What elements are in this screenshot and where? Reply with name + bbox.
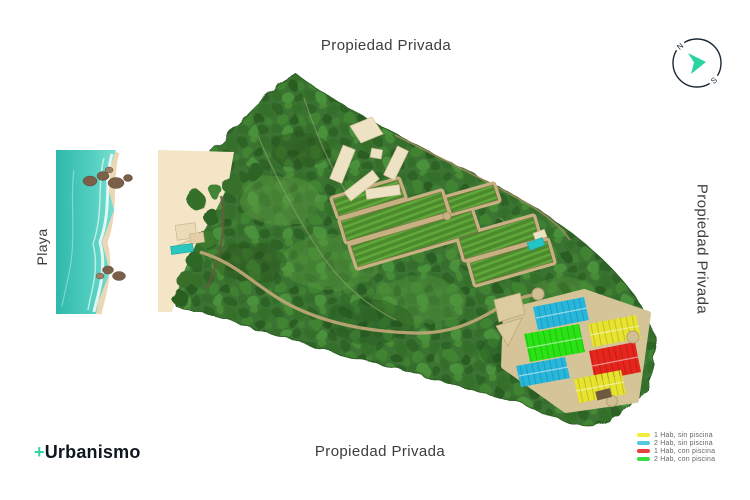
legend-swatch-blue xyxy=(637,441,650,445)
legend-swatch-yellow xyxy=(637,433,650,437)
label-private-property-top: Propiedad Privada xyxy=(321,37,451,54)
masterplan-page: Propiedad Privada Propiedad Privada Prop… xyxy=(0,0,750,500)
legend-item: 2 Hab, sin piscina xyxy=(637,439,715,447)
legend-swatch-green xyxy=(637,457,650,461)
compass-needle xyxy=(688,53,706,74)
legend-label: 2 Hab, sin piscina xyxy=(654,440,713,447)
logo-plus-icon: + xyxy=(34,442,45,462)
legend-label: 2 Hab, con piscina xyxy=(654,456,715,463)
legend-item: 2 Hab, con piscina xyxy=(637,455,715,463)
field-roundabout xyxy=(443,212,451,220)
legend-label: 1 Hab, con piscina xyxy=(654,448,715,455)
label-private-property-right: Propiedad Privada xyxy=(694,184,711,314)
compass-icon: N S xyxy=(664,31,730,97)
legend-swatch-red xyxy=(637,449,650,453)
legend-item: 1 Hab, con piscina xyxy=(637,447,715,455)
urbanismo-logo: +Urbanismo xyxy=(34,442,141,463)
site-plan-map xyxy=(0,0,750,500)
logo-name: Urbanismo xyxy=(45,442,141,462)
legend-item: 1 Hab, sin piscina xyxy=(637,431,715,439)
lot-type-legend: 1 Hab, sin piscina 2 Hab, sin piscina 1 … xyxy=(637,431,715,463)
legend-label: 1 Hab, sin piscina xyxy=(654,432,713,439)
label-beach: Playa xyxy=(34,228,50,265)
label-private-property-bottom: Propiedad Privada xyxy=(315,443,445,460)
